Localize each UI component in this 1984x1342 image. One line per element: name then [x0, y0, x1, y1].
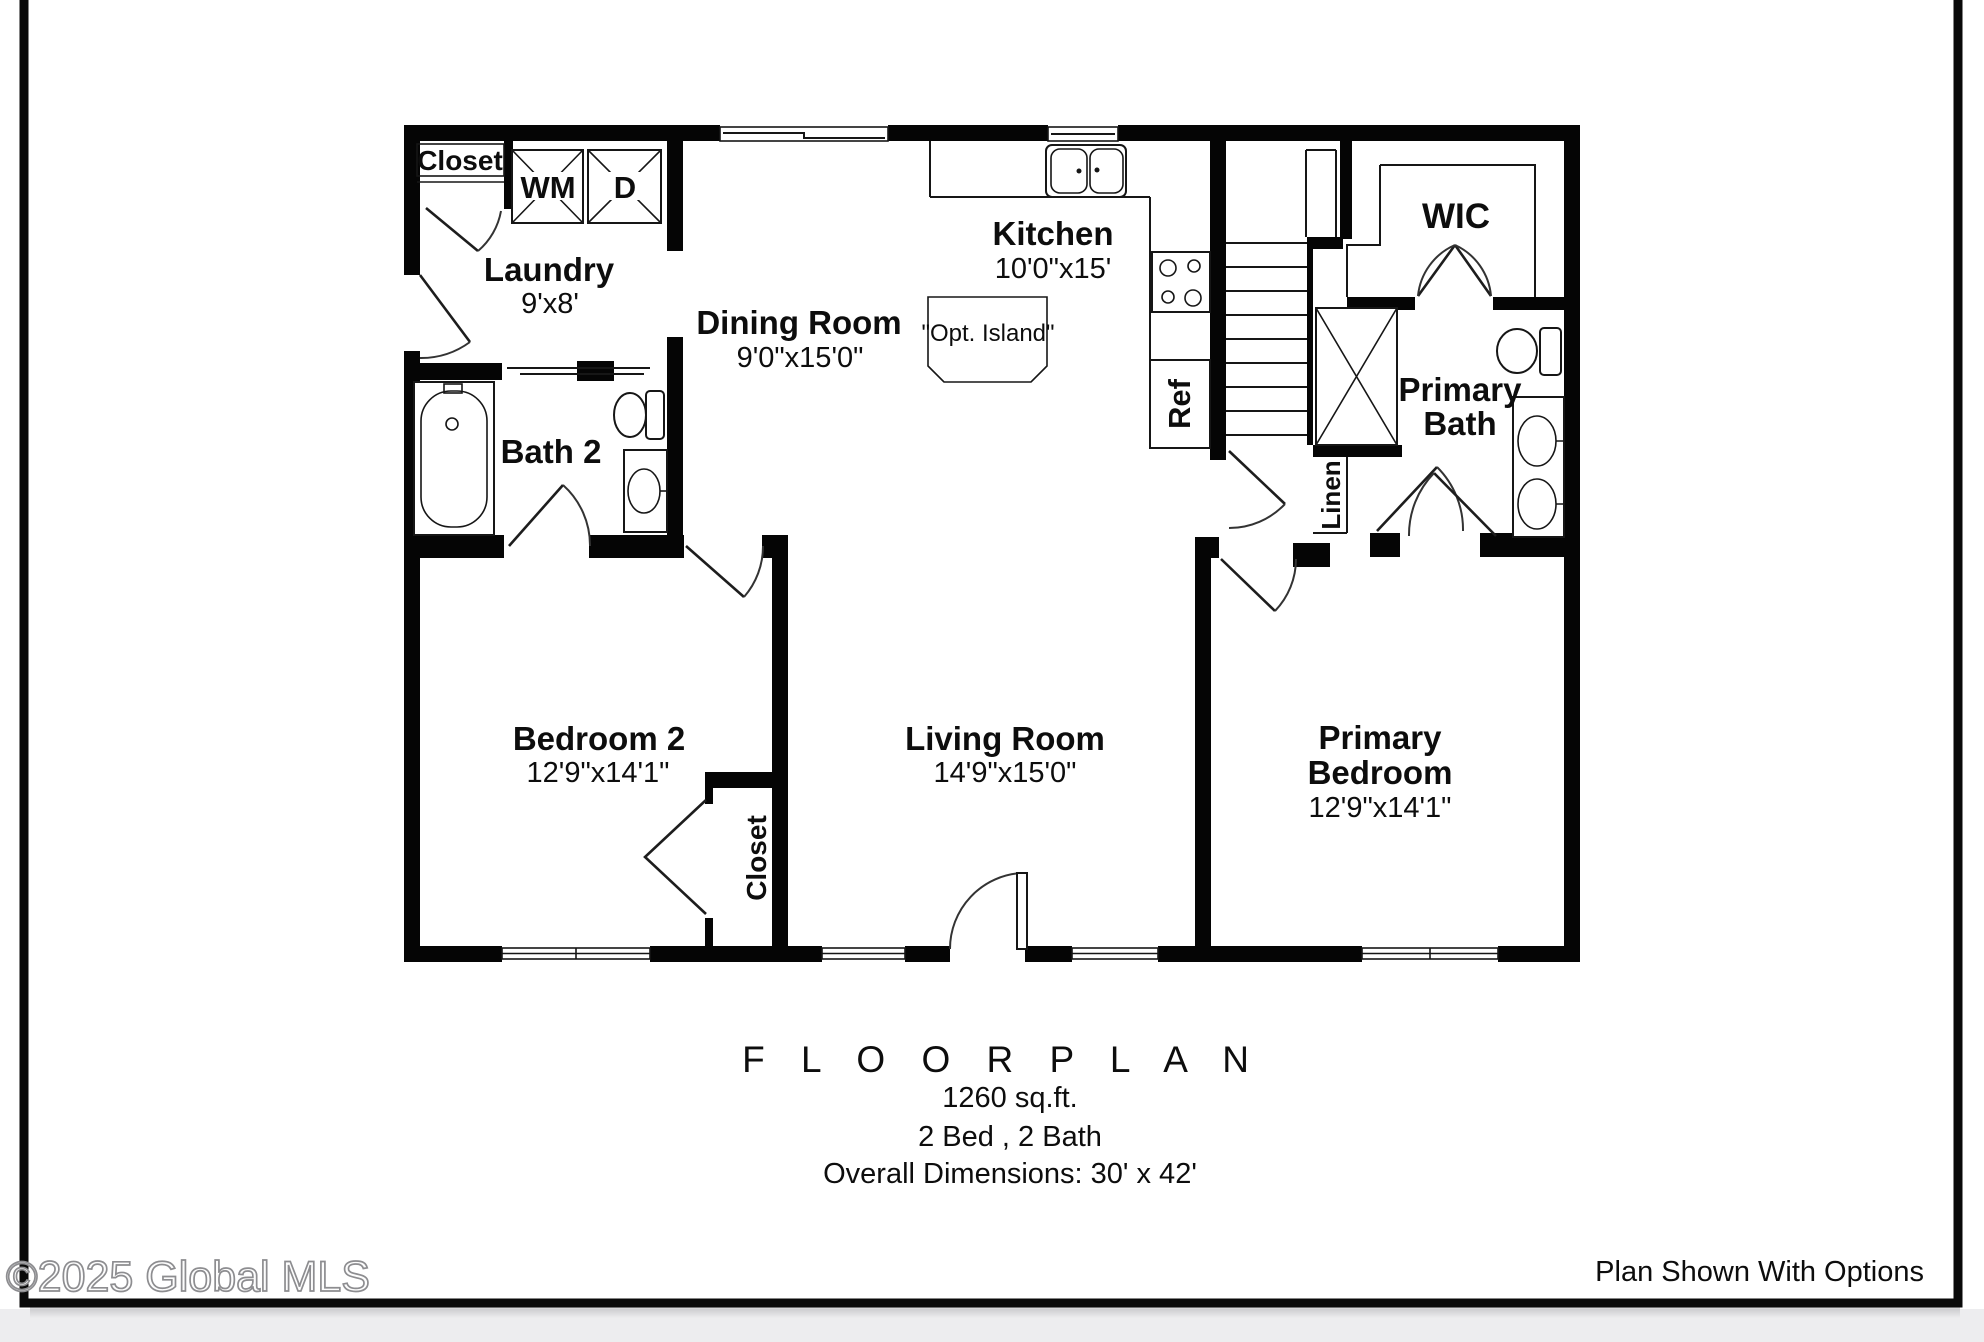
shower: [1316, 308, 1397, 445]
primary-bath-name-line1: Primary: [1399, 371, 1523, 408]
bedroom2-closet-label: Closet: [741, 815, 772, 901]
plan-overall-dimensions: Overall Dimensions: 30' x 42': [823, 1158, 1197, 1190]
plan-area: 1260 sq.ft.: [942, 1082, 1077, 1114]
floor-plan-page: Closet WM D Laundry 9'x8' Dining Room 9'…: [0, 0, 1984, 1342]
wic-name: WIC: [1422, 197, 1490, 236]
laundry-dims: 9'x8': [521, 288, 579, 320]
watermark: ©2025 Global MLS: [6, 1253, 370, 1301]
laundry-name: Laundry: [484, 251, 615, 288]
primary-bedroom-dims: 12'9"x14'1": [1309, 792, 1452, 824]
kitchen-name: Kitchen: [992, 215, 1113, 252]
optional-island-label: "Opt. Island": [921, 320, 1054, 347]
linen-label: Linen: [1316, 460, 1346, 529]
primary-bedroom-name-line2: Bedroom: [1308, 754, 1453, 791]
living-room-dims: 14'9"x15'0": [934, 757, 1077, 789]
dining-room-name: Dining Room: [696, 304, 901, 341]
bath2-vanity: [624, 450, 667, 532]
primary-bath-toilet: [1497, 328, 1561, 375]
bedroom2-name: Bedroom 2: [513, 720, 685, 757]
footer-note: Plan Shown With Options: [1595, 1256, 1924, 1288]
bedroom2-dims: 12'9"x14'1": [527, 757, 670, 789]
bath2-toilet: [614, 391, 664, 439]
kitchen-sink: [1046, 145, 1126, 197]
bath2-tub: [414, 382, 494, 535]
primary-bedroom-name-line1: Primary: [1319, 719, 1443, 756]
dryer-label: D: [614, 170, 636, 205]
frame-shadow: [30, 1306, 1960, 1318]
plan-title: F L O O R P L A N: [742, 1039, 1262, 1080]
primary-bath-vanity: [1513, 397, 1564, 537]
floor-plan-drawing: Closet WM D Laundry 9'x8' Dining Room 9'…: [0, 0, 1984, 1342]
living-room-name: Living Room: [905, 720, 1105, 757]
plan-bed-bath: 2 Bed , 2 Bath: [918, 1121, 1102, 1153]
kitchen-dims: 10'0"x15': [995, 253, 1112, 285]
primary-bath-name-line2: Bath: [1423, 405, 1496, 442]
dining-room-dims: 9'0"x15'0": [737, 342, 864, 374]
bath2-name: Bath 2: [501, 433, 602, 470]
stove: [1152, 252, 1210, 312]
entry-closet-label: Closet: [417, 145, 503, 176]
fridge-label: Ref: [1162, 378, 1197, 429]
washer-label: WM: [520, 170, 575, 205]
